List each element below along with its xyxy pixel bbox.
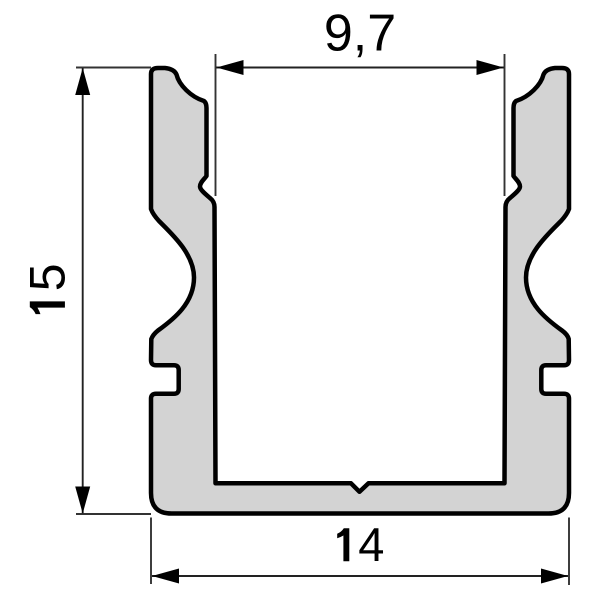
svg-text:9,7: 9,7 (324, 4, 396, 62)
svg-text:4: 4 (358, 518, 384, 571)
svg-text:5: 5 (20, 263, 76, 291)
